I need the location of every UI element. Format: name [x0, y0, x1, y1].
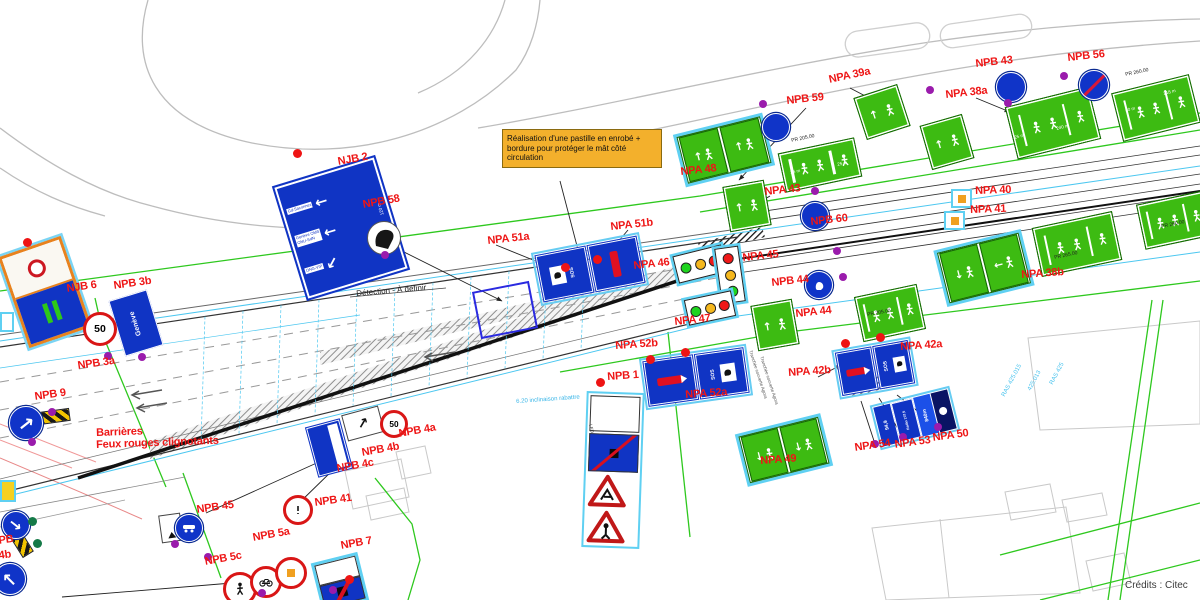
- red-dot: [876, 333, 885, 342]
- red-slash-icon: [588, 433, 639, 473]
- pull-handle-icon: [846, 366, 867, 376]
- red-slash-icon: [1080, 71, 1108, 99]
- emergency-phone-icon: [892, 355, 906, 372]
- purple-dot: [48, 408, 56, 416]
- white-blob-icon: [939, 406, 949, 416]
- blue-arrow-sign: →: [9, 406, 43, 440]
- orange-marker-box: [951, 189, 972, 208]
- purple-dot: [839, 273, 847, 281]
- red-dot: [646, 355, 655, 364]
- mark-icon: [294, 505, 302, 515]
- up-right-arrow-icon: ↗: [355, 414, 370, 432]
- warning-triangle-roadworks-icon: [587, 473, 628, 508]
- green-exit-sign: ↑: [750, 299, 799, 352]
- emergency-phone-panel: SOS: [536, 247, 593, 302]
- down-left-arrow-icon: ↙: [323, 253, 340, 274]
- purple-dot: [258, 589, 266, 597]
- npb1-white-panel: [589, 395, 640, 433]
- red-dot: [561, 263, 570, 272]
- exit-arrow-icon: ↑: [762, 319, 773, 333]
- exit-arrow-icon: ↑: [933, 137, 945, 152]
- signal-lamp-y: [693, 257, 706, 270]
- red-dot: [345, 575, 354, 584]
- annotation-note: Réalisation d'une pastille en enrobé + b…: [502, 129, 662, 168]
- label-pb: PB: [0, 534, 14, 547]
- purple-dot: [759, 100, 767, 108]
- prohibition-sign-mark: [283, 495, 313, 525]
- orange-marker-box: [944, 211, 965, 230]
- npb1-no-entry-panel: [588, 433, 639, 473]
- green-lane-bar-icon: [42, 304, 53, 325]
- fire-extinguisher-icon: [609, 250, 622, 277]
- pedestrian-icon: [234, 582, 246, 596]
- purple-dot: [811, 187, 819, 195]
- green-lane-bar-icon: [51, 300, 62, 321]
- purple-dot: [926, 86, 934, 94]
- signal-lamp-y: [724, 269, 736, 281]
- label-npa-40: NPA 40: [975, 185, 1011, 197]
- red-dot: [841, 339, 850, 348]
- signal-lamp-r: [722, 253, 734, 265]
- left-arrow-icon: ←: [321, 221, 338, 242]
- purple-dot: [833, 247, 841, 255]
- red-dot: [596, 378, 605, 387]
- prohibition-sign-50: 50: [83, 312, 117, 346]
- purple-dot: [1004, 99, 1012, 107]
- purple-dot: [28, 438, 36, 446]
- red-dot: [681, 348, 690, 357]
- njb2-destination-2: Genève OMSONU-SdN: [294, 229, 322, 247]
- exit-arrow-icon: ↑: [868, 107, 881, 122]
- purple-dot: [138, 353, 146, 361]
- signal-lamp-g: [679, 261, 692, 274]
- black-glyph-icon: [368, 222, 400, 254]
- blue-sign-circle: [175, 514, 203, 542]
- hand-icon: [813, 279, 825, 291]
- orange-square-icon: [287, 569, 295, 577]
- label-npa-41: NPA 41: [970, 204, 1006, 216]
- green-dot: [28, 517, 37, 526]
- purple-dot: [1060, 72, 1068, 80]
- orange-square-icon: [951, 217, 959, 225]
- signal-lamp-r: [717, 299, 730, 312]
- label-4b: 4b: [0, 549, 12, 562]
- pull-handle-panel: [836, 348, 877, 395]
- mini-sign: [0, 480, 16, 502]
- left-arrow-icon: ←: [313, 191, 330, 212]
- blue-sign-circle: [996, 72, 1026, 102]
- purple-dot: [171, 540, 179, 548]
- credits: Crédits : Citec: [1125, 580, 1188, 591]
- prohibition-sign-square: [275, 557, 307, 589]
- purple-dot: [381, 251, 389, 259]
- pull-handle-icon: [657, 375, 684, 387]
- traffic-signage-plan: Gd-Saconnex ← Genève OMSONU-SdN ← ONG-VI…: [0, 0, 1200, 600]
- red-dot: [593, 255, 602, 264]
- bicycle-icon: [259, 577, 273, 587]
- white-arrow-icon: →: [0, 566, 23, 592]
- small-text: LED: [588, 424, 594, 434]
- label-npb-1: NPB 1: [607, 370, 639, 383]
- white-arrow-icon: →: [13, 409, 40, 437]
- blue-sign-circle: [1079, 70, 1109, 100]
- prohibition-ring-icon: [26, 257, 49, 280]
- purple-dot: [329, 586, 337, 594]
- mini-sign: [0, 312, 14, 332]
- njb2-destination-3: ONG-VIP: [304, 263, 324, 275]
- blue-sign-circle: [762, 113, 790, 141]
- red-dot: [23, 238, 32, 247]
- speed-limit-value: 50: [94, 323, 106, 335]
- emergency-phone-icon: [719, 363, 736, 383]
- vehicle-icon: [182, 523, 196, 533]
- warning-triangle-icon: [585, 509, 626, 544]
- njb2-destination-1: Gd-Saconnex: [286, 201, 313, 215]
- sign-npb58: [367, 221, 401, 255]
- red-dot: [293, 149, 302, 158]
- orange-square-icon: [958, 195, 966, 203]
- sign-assembly-npb1: [581, 391, 644, 549]
- exit-arrow-icon: ↑: [734, 200, 745, 214]
- green-dot: [33, 539, 42, 548]
